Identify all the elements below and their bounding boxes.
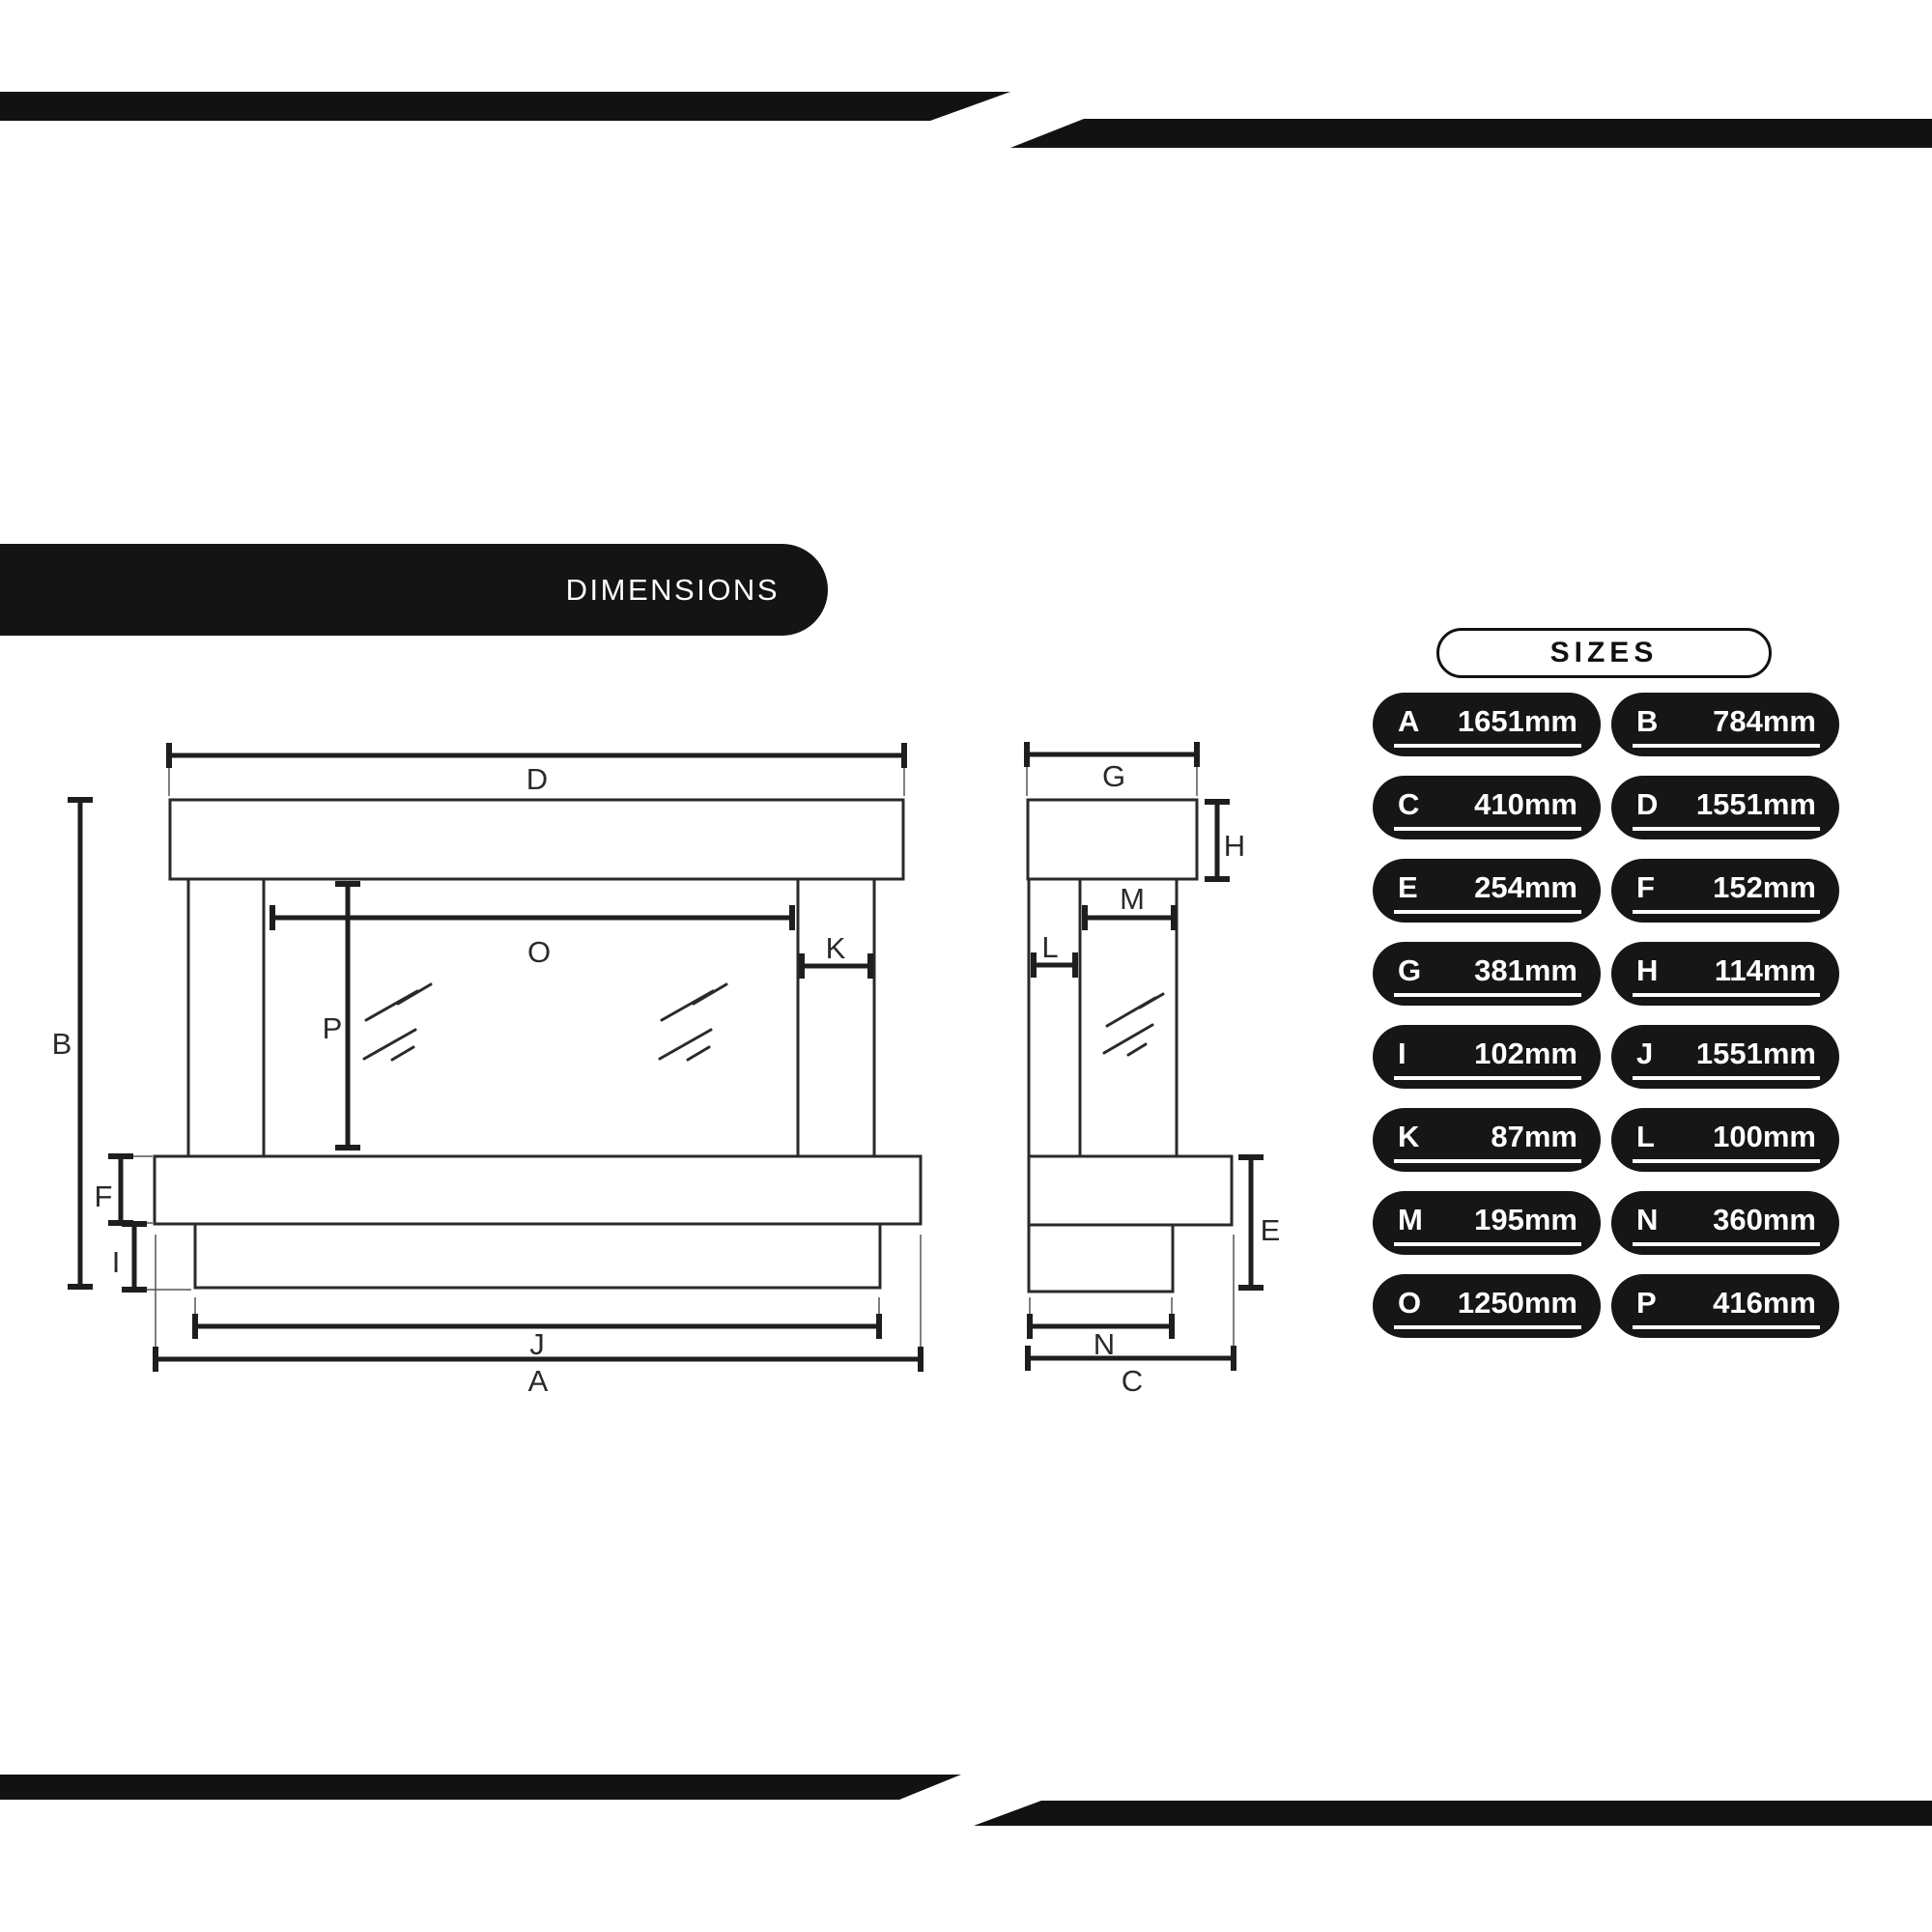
- size-value: 784mm: [1713, 706, 1816, 736]
- sizes-title-label: SIZES: [1550, 637, 1659, 669]
- size-letter: F: [1636, 872, 1655, 902]
- dimension-labels: D B O K P F I J A G H M L E N C: [52, 759, 1281, 1398]
- dim-label-C: C: [1122, 1364, 1143, 1398]
- side-hearth: [1029, 1156, 1232, 1225]
- size-underline: [1394, 1242, 1581, 1246]
- size-pill-G: G 381mm: [1373, 942, 1601, 1006]
- dim-label-B: B: [52, 1027, 72, 1061]
- size-pill-P: P 416mm: [1611, 1274, 1839, 1338]
- size-pill-J: J 1551mm: [1611, 1025, 1839, 1089]
- size-letter: N: [1636, 1205, 1658, 1235]
- dim-label-J: J: [529, 1327, 545, 1361]
- dim-label-E: E: [1261, 1213, 1281, 1247]
- size-letter: G: [1398, 955, 1421, 985]
- size-underline: [1394, 1325, 1581, 1329]
- size-underline: [1633, 910, 1820, 914]
- size-value: 87mm: [1491, 1122, 1577, 1151]
- size-value: 381mm: [1474, 955, 1577, 985]
- dim-label-O: O: [527, 935, 551, 969]
- size-letter: H: [1636, 955, 1658, 985]
- size-pill-L: L 100mm: [1611, 1108, 1839, 1172]
- size-letter: C: [1398, 789, 1419, 819]
- size-value: 1551mm: [1696, 789, 1816, 819]
- dim-label-P: P: [323, 1011, 343, 1045]
- size-value: 100mm: [1713, 1122, 1816, 1151]
- size-letter: O: [1398, 1288, 1421, 1318]
- dim-label-I: I: [112, 1245, 121, 1279]
- side-base: [1029, 1225, 1173, 1292]
- sizes-grid: A 1651mm B 784mm C 410mm D 1551mm E 254m…: [1373, 693, 1839, 1338]
- size-value: 1651mm: [1458, 706, 1577, 736]
- size-letter: K: [1398, 1122, 1419, 1151]
- glass-hatch-marks: [364, 984, 1163, 1060]
- size-value: 1250mm: [1458, 1288, 1577, 1318]
- size-value: 152mm: [1713, 872, 1816, 902]
- front-right-leg: [798, 879, 874, 1156]
- side-view-structure: [1028, 800, 1232, 1292]
- dim-label-N: N: [1094, 1327, 1115, 1361]
- size-underline: [1394, 910, 1581, 914]
- size-letter: P: [1636, 1288, 1657, 1318]
- side-top-shelf: [1028, 800, 1197, 879]
- side-rear-panel: [1029, 879, 1080, 1156]
- size-value: 416mm: [1713, 1288, 1816, 1318]
- size-pill-F: F 152mm: [1611, 859, 1839, 923]
- front-hearth: [155, 1156, 921, 1224]
- size-value: 195mm: [1474, 1205, 1577, 1235]
- size-letter: L: [1636, 1122, 1655, 1151]
- size-pill-B: B 784mm: [1611, 693, 1839, 756]
- size-pill-A: A 1651mm: [1373, 693, 1601, 756]
- dim-label-G: G: [1102, 759, 1125, 793]
- size-letter: I: [1398, 1038, 1406, 1068]
- size-underline: [1633, 1076, 1820, 1080]
- size-pill-K: K 87mm: [1373, 1108, 1601, 1172]
- size-letter: D: [1636, 789, 1658, 819]
- size-value: 102mm: [1474, 1038, 1577, 1068]
- dim-label-M: M: [1120, 882, 1145, 916]
- dim-label-D: D: [526, 762, 548, 796]
- size-pill-E: E 254mm: [1373, 859, 1601, 923]
- front-view-structure: [155, 800, 921, 1288]
- size-pill-D: D 1551mm: [1611, 776, 1839, 839]
- dim-label-F: F: [95, 1179, 113, 1213]
- size-underline: [1394, 993, 1581, 997]
- size-letter: B: [1636, 706, 1658, 736]
- front-left-leg: [188, 879, 264, 1156]
- size-underline: [1394, 1076, 1581, 1080]
- dim-label-H: H: [1224, 829, 1245, 863]
- size-underline: [1633, 1242, 1820, 1246]
- size-underline: [1633, 1159, 1820, 1163]
- size-pill-H: H 114mm: [1611, 942, 1839, 1006]
- size-value: 1551mm: [1696, 1038, 1816, 1068]
- size-value: 410mm: [1474, 789, 1577, 819]
- size-pill-O: O 1250mm: [1373, 1274, 1601, 1338]
- size-letter: A: [1398, 706, 1419, 736]
- side-glass-column: [1080, 879, 1177, 1156]
- front-top-shelf: [170, 800, 903, 879]
- size-underline: [1633, 993, 1820, 997]
- sizes-panel-title: SIZES: [1436, 628, 1772, 678]
- size-pill-C: C 410mm: [1373, 776, 1601, 839]
- size-underline: [1394, 827, 1581, 831]
- size-underline: [1633, 827, 1820, 831]
- size-pill-N: N 360mm: [1611, 1191, 1839, 1255]
- extension-lines: [108, 760, 1234, 1355]
- size-pill-M: M 195mm: [1373, 1191, 1601, 1255]
- size-letter: M: [1398, 1205, 1423, 1235]
- dim-label-L: L: [1041, 930, 1058, 964]
- dim-label-K: K: [826, 931, 846, 965]
- size-value: 254mm: [1474, 872, 1577, 902]
- size-underline: [1394, 1159, 1581, 1163]
- size-pill-I: I 102mm: [1373, 1025, 1601, 1089]
- size-letter: J: [1636, 1038, 1653, 1068]
- size-letter: E: [1398, 872, 1418, 902]
- dim-label-A: A: [528, 1364, 549, 1398]
- size-underline: [1633, 744, 1820, 748]
- size-value: 114mm: [1715, 955, 1816, 985]
- size-underline: [1633, 1325, 1820, 1329]
- size-value: 360mm: [1713, 1205, 1816, 1235]
- front-base: [195, 1224, 880, 1288]
- size-underline: [1394, 744, 1581, 748]
